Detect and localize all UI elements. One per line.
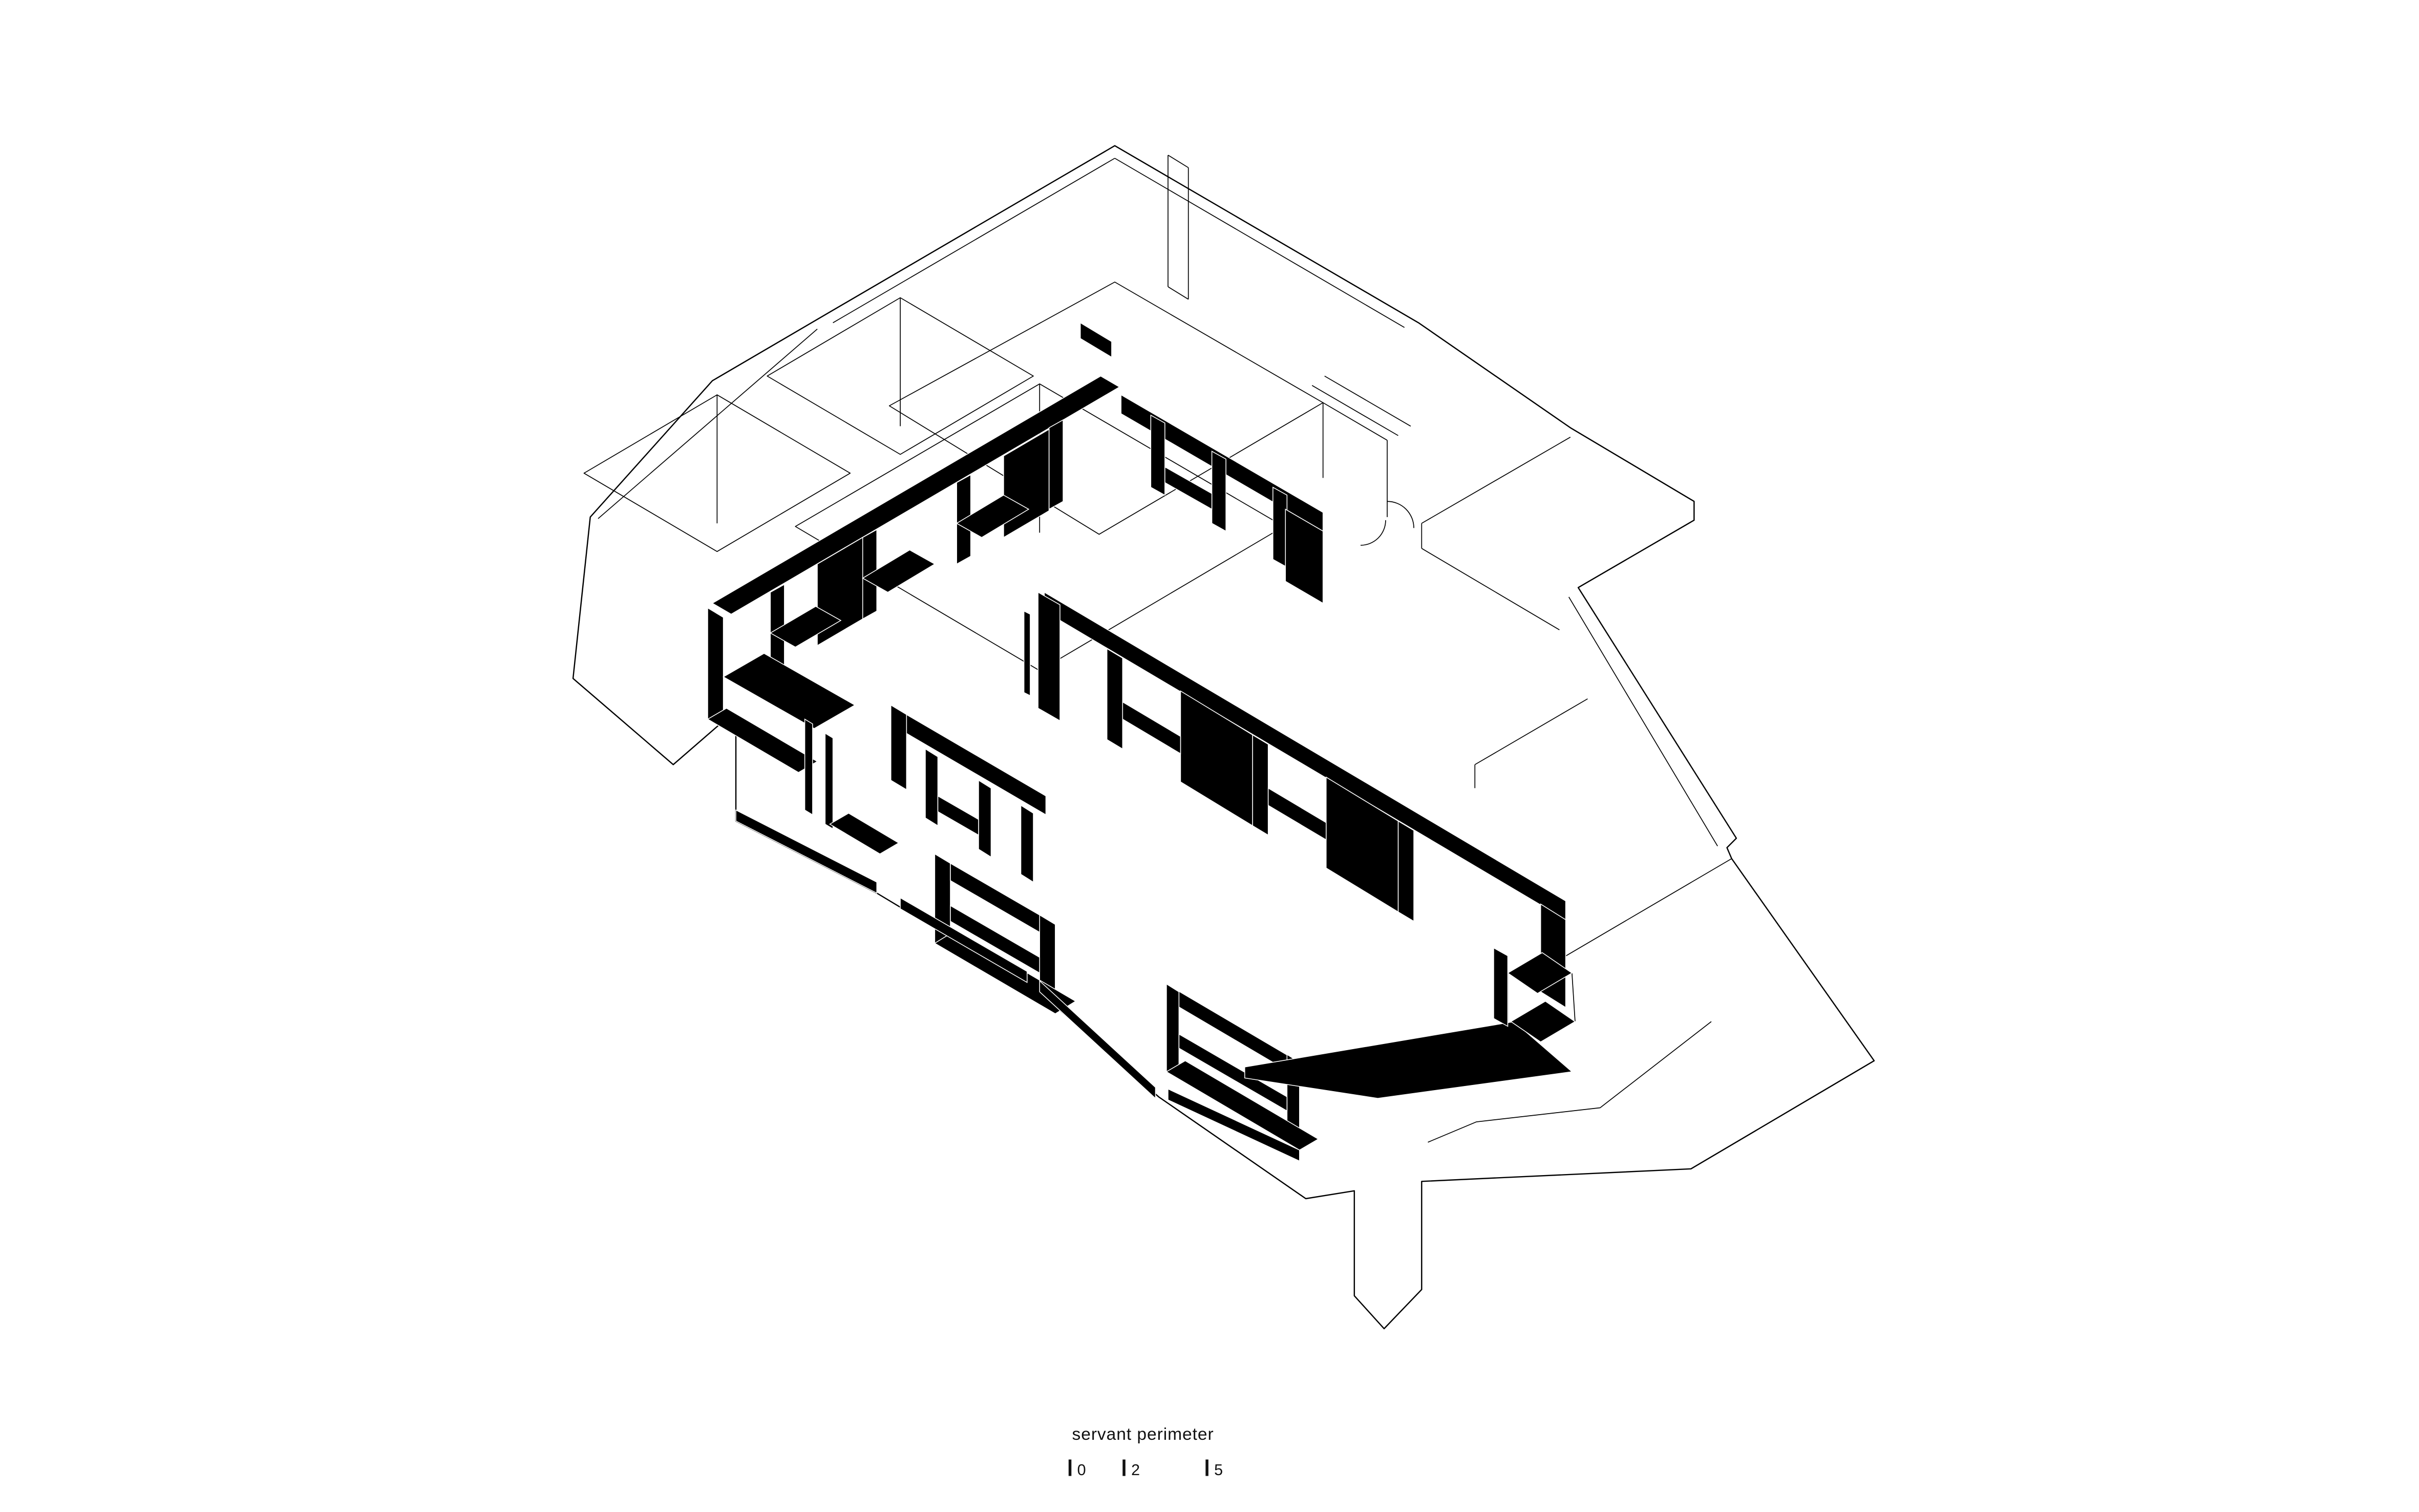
scale-tick-2 [1122, 1459, 1126, 1476]
scale-tick-0 [1069, 1459, 1072, 1476]
scale-label-0: 0 [1077, 1461, 1086, 1479]
scale-tick-5 [1205, 1459, 1208, 1476]
scale-label-5: 5 [1214, 1461, 1223, 1479]
scale-label-2: 2 [1131, 1461, 1140, 1479]
figure-caption: servant perimeter [1072, 1425, 1214, 1444]
scale-bar: 0 2 5 [1069, 1459, 1223, 1479]
drawing-sheet: servant perimeter 0 2 5 [0, 0, 2419, 1512]
axonometric-drawing: servant perimeter 0 2 5 [0, 0, 2419, 1512]
